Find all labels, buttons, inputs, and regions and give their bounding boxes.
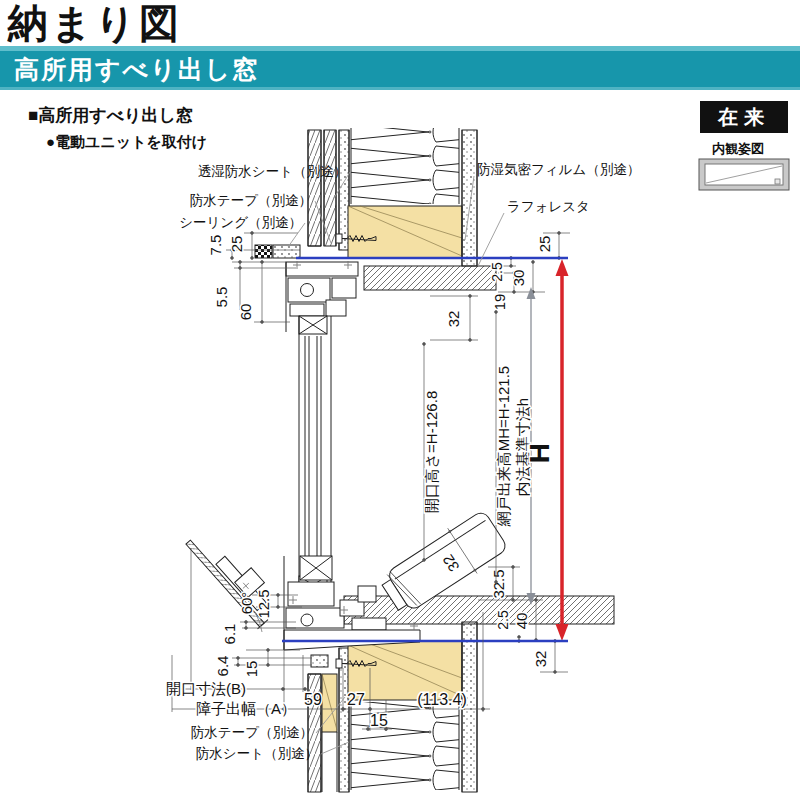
dim-32-5: 32.5: [490, 569, 507, 598]
sealant-backer: [255, 245, 272, 258]
dim-25-right: 25: [536, 236, 553, 253]
dim-59: 59: [304, 691, 322, 708]
callout-film: 防湿気密フィルム（別途）: [477, 162, 640, 177]
waterproof-tape-top: [273, 245, 300, 258]
dim-25-left: 25: [228, 236, 245, 253]
interior-board-upper: [462, 130, 477, 266]
waterproof-tape-bottom: [311, 655, 328, 667]
dim-19: 19: [491, 294, 508, 311]
dim-12-5: 12.5: [255, 589, 272, 618]
callout-tape-top: 防水テープ（別途）: [190, 193, 312, 208]
dim-angle-60: 60°: [238, 592, 255, 615]
dim-15-vert: 15: [243, 661, 260, 678]
label-H: H: [524, 443, 555, 463]
dim-32-below: 32: [532, 651, 549, 668]
dim-30: 30: [510, 270, 527, 287]
label-shoji-a: 障子出幅（A）: [196, 700, 296, 717]
callout-sealing: シーリング（別途）: [179, 215, 302, 230]
dim-15-horiz: 15: [370, 712, 388, 729]
interior-casing: [344, 266, 614, 624]
callout-sheet-top: 透湿防水シート（別途）: [198, 164, 347, 179]
dim-27: 27: [347, 691, 365, 708]
insulation-upper: [351, 128, 459, 204]
dim-7-5: 7.5: [207, 235, 224, 256]
callout-tape-bottom: 防水テープ（別途）: [191, 725, 313, 740]
dim-40: 40: [513, 613, 530, 630]
page: 納まり図 高所用すべり出し窓 ■高所用すべり出し窓 ●電動ユニットを取付け 在来…: [0, 0, 800, 800]
dim-113-4: (113.4): [417, 691, 467, 708]
label-screen-height: 網戸出来高MH=H-121.5: [495, 366, 512, 527]
dim-2-5-bottom: 2.5: [495, 610, 511, 630]
dim-6-1: 6.1: [221, 624, 238, 645]
callout-sheet-bottom: 防水シート（別途）: [196, 746, 318, 761]
insulation-lower: [351, 702, 459, 790]
dim-5-5: 5.5: [213, 287, 230, 308]
label-opening-b: 開口寸法(B): [166, 680, 246, 697]
label-opening-height: 開口高さ=H-126.8: [423, 391, 440, 513]
dim-60: 60: [237, 304, 254, 321]
callout-laforesta: ラフォレスタ: [507, 199, 590, 214]
section-drawing: 32: [0, 0, 800, 800]
dim-2-5-top: 2.5: [489, 262, 505, 282]
dim-H-red: [556, 259, 569, 641]
head-casing: [364, 266, 496, 290]
dim-32-head: 32: [445, 311, 462, 328]
dim-6-4: 6.4: [214, 656, 231, 677]
